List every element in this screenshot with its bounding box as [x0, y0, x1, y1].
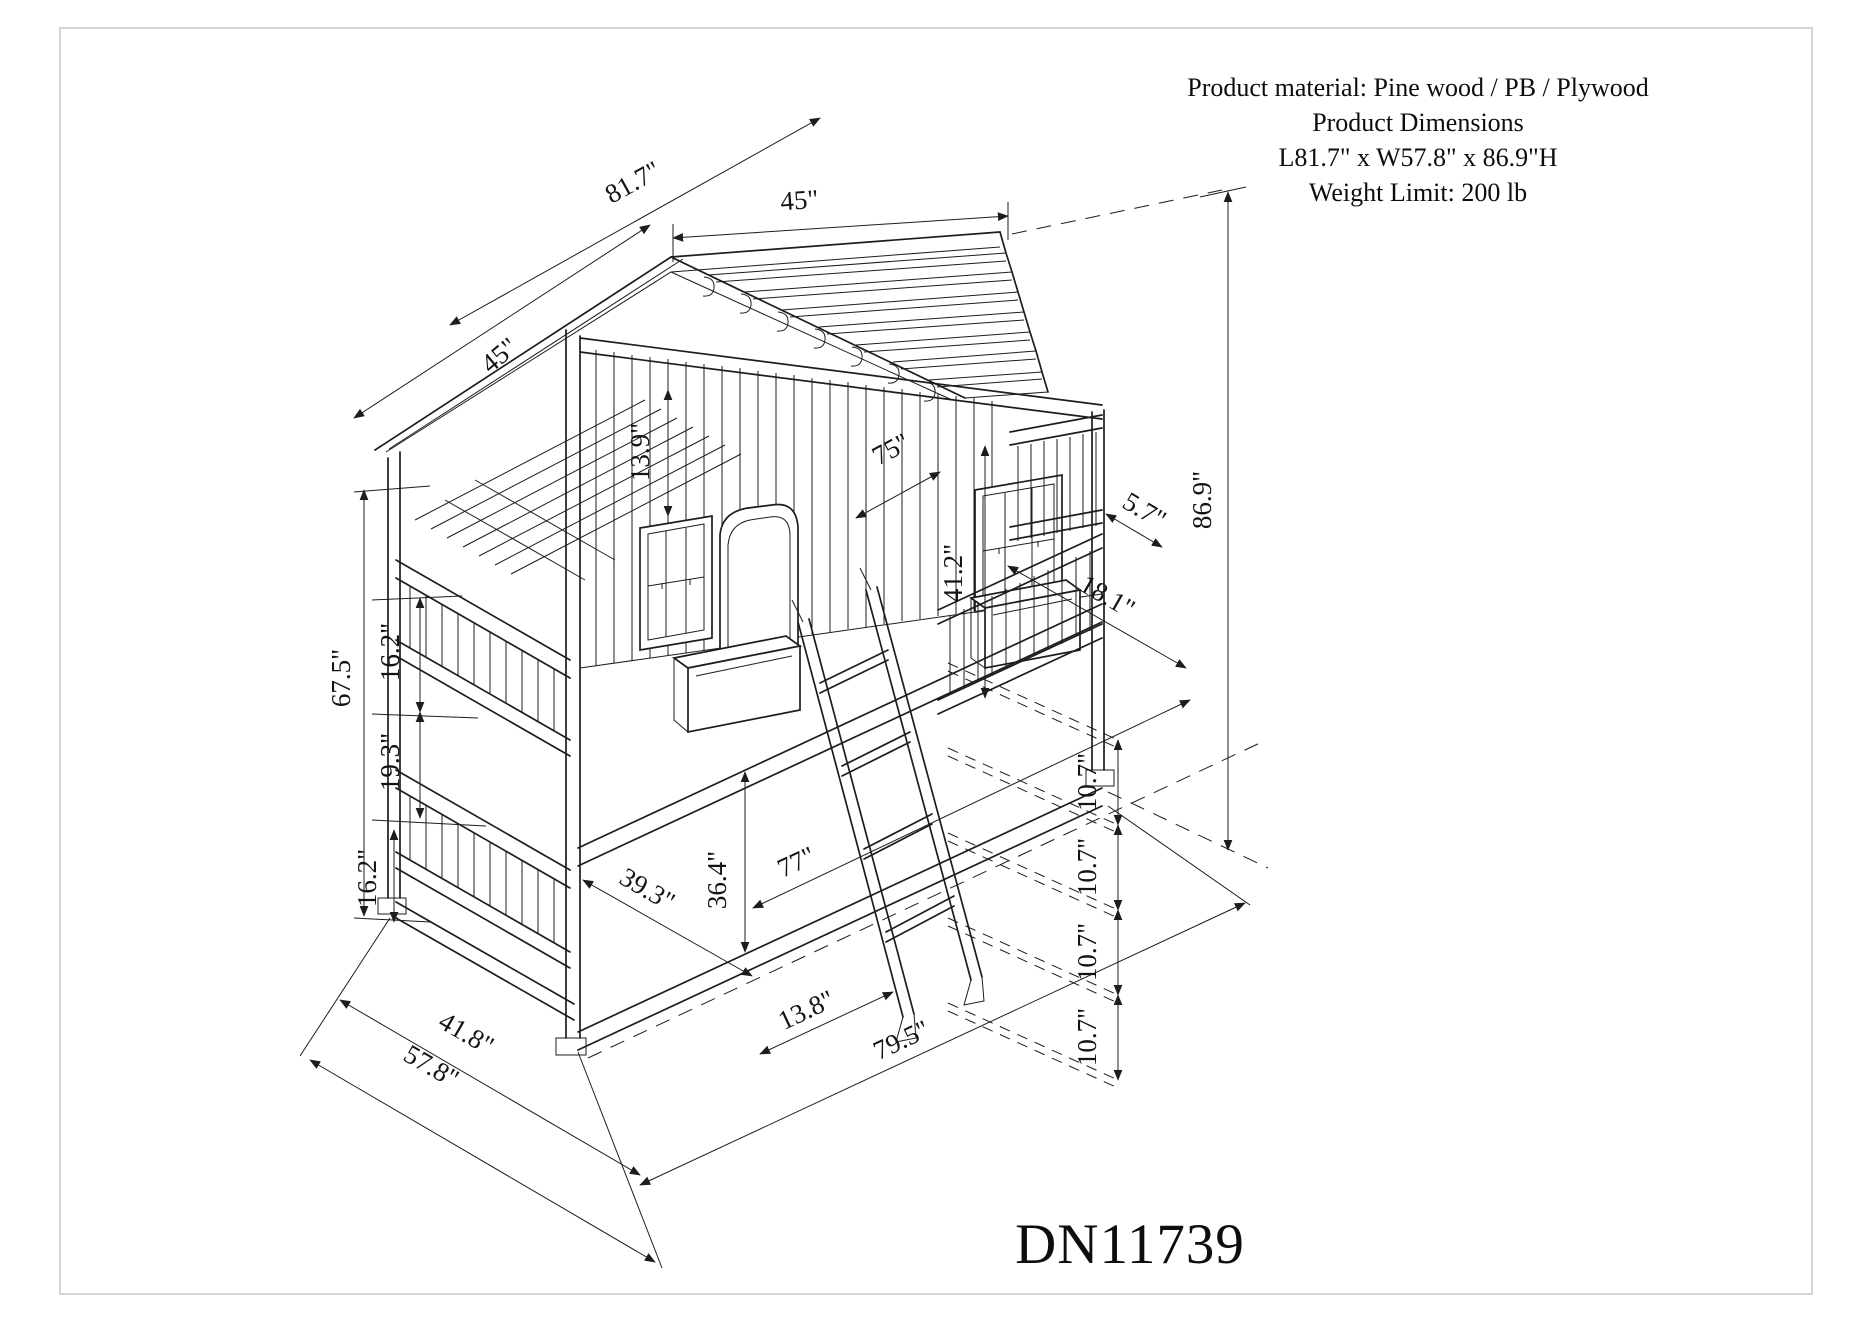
- dim-mid-rail-gap: 19.3": [375, 733, 405, 791]
- dim-wall-opening-height: 41.2": [938, 544, 968, 602]
- bed-side-rails: [578, 604, 1102, 1050]
- dim-overall-width: 57.8": [399, 1039, 464, 1094]
- dim-side-height: 67.5": [326, 649, 356, 707]
- dim-planter-height: 5.7": [1118, 486, 1172, 535]
- dim-rung-spacing-4: 10.7": [1072, 1008, 1102, 1066]
- dim-rung-spacing-1: 10.7": [1072, 753, 1102, 811]
- dim-rung-spacing-3: 10.7": [1072, 923, 1102, 981]
- dim-ladder-offset: 13.8": [773, 984, 838, 1036]
- dim-bed-inner-length: 77": [773, 840, 820, 883]
- dim-roof-peak-height: 13.9": [625, 423, 655, 481]
- product-code: DN11739: [950, 1212, 1310, 1277]
- dim-roof-top-width: 45": [779, 184, 819, 217]
- info-dim-title: Product Dimensions: [1158, 105, 1678, 140]
- dim-upper-rail-gap: 16.2": [375, 623, 405, 681]
- dim-rung-spacing-2: 10.7": [1072, 838, 1102, 896]
- dim-roof-slope-width: 45": [475, 331, 523, 378]
- ladder-group: [792, 568, 984, 1042]
- info-dim-values: L81.7" x W57.8" x 86.9"H: [1158, 140, 1678, 175]
- info-material: Product material: Pine wood / PB / Plywo…: [1158, 70, 1678, 105]
- dim-planter-length: 18.1": [1075, 569, 1140, 624]
- lower-bunk-gable-rail: [396, 770, 574, 1020]
- info-block: Product material: Pine wood / PB / Plywo…: [1158, 70, 1678, 210]
- dim-overall-height: 86.9": [1187, 471, 1217, 529]
- dim-mattress-length: 75": [867, 427, 915, 471]
- upper-bunk-gable-rail: [396, 560, 570, 756]
- dim-under-bed-height: 36.4": [702, 851, 732, 909]
- sheet-border: [60, 28, 1812, 1294]
- dim-bed-inner-width: 39.3": [615, 862, 680, 917]
- left-flower-box: [674, 636, 800, 732]
- dim-bed-width: 41.8": [434, 1006, 499, 1061]
- drawing-sheet: 81.7" 45" 45" 13.9" 75" 41.2" 5.7" 18.1"…: [0, 0, 1871, 1322]
- dim-roof-length: 81.7": [600, 155, 666, 209]
- info-weight: Weight Limit: 200 lb: [1158, 175, 1678, 210]
- left-window: [640, 516, 712, 650]
- dim-lower-rail-gap: 16.2": [352, 849, 382, 907]
- roof-group: [375, 232, 1048, 452]
